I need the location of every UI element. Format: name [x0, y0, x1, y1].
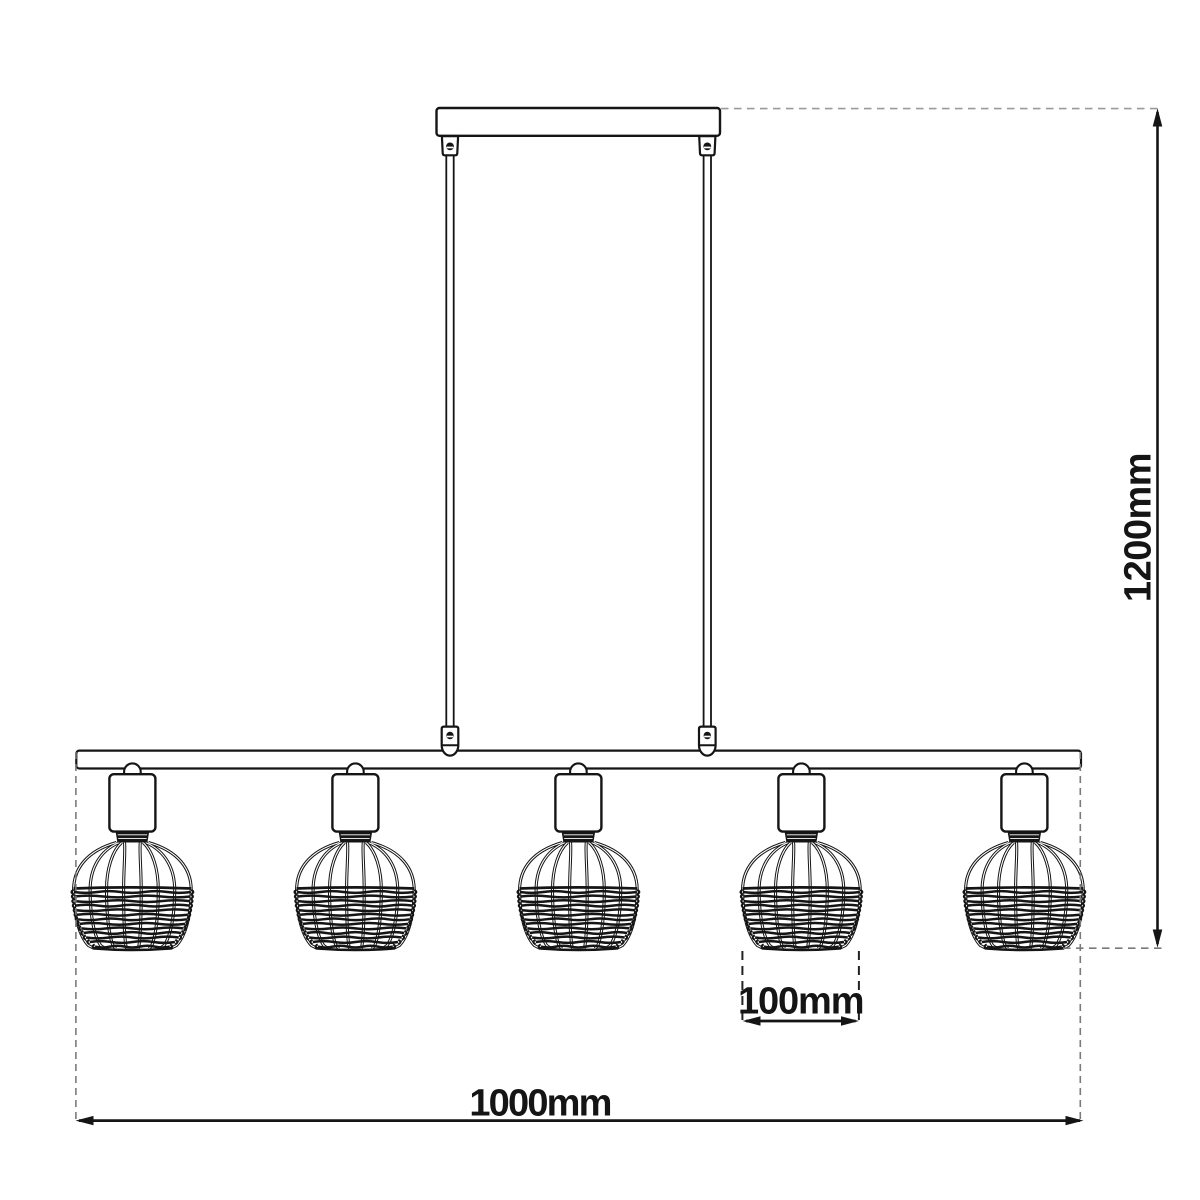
svg-text:1000mm: 1000mm [469, 1083, 610, 1125]
svg-text:1200mm: 1200mm [1118, 453, 1160, 602]
svg-text:100mm: 100mm [738, 981, 863, 1023]
